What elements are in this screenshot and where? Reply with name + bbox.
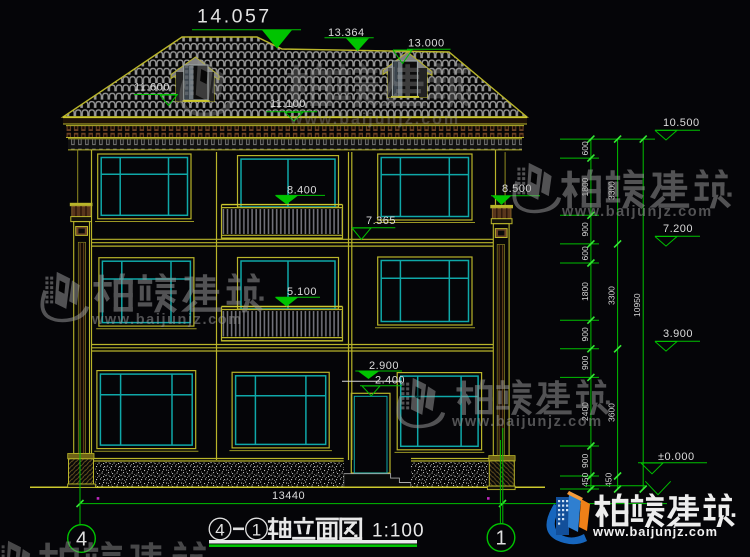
svg-text:1:100: 1:100 bbox=[372, 521, 425, 542]
svg-text:10950: 10950 bbox=[632, 293, 642, 317]
svg-text:450: 450 bbox=[580, 473, 590, 487]
svg-text:14.057: 14.057 bbox=[197, 6, 272, 28]
svg-text:600: 600 bbox=[580, 141, 590, 155]
svg-text:1: 1 bbox=[495, 528, 506, 550]
svg-text:900: 900 bbox=[580, 356, 590, 370]
svg-text:13.364: 13.364 bbox=[328, 27, 365, 39]
svg-text:13440: 13440 bbox=[272, 490, 305, 502]
svg-text:900: 900 bbox=[580, 222, 590, 236]
svg-text:1: 1 bbox=[252, 521, 261, 540]
svg-text:2.400: 2.400 bbox=[375, 375, 405, 387]
svg-text:11.600: 11.600 bbox=[134, 82, 170, 94]
svg-text:4: 4 bbox=[215, 521, 224, 540]
svg-text:1800: 1800 bbox=[580, 282, 590, 301]
svg-text:www.baijunjz.com: www.baijunjz.com bbox=[91, 312, 243, 328]
svg-text:8.400: 8.400 bbox=[287, 185, 317, 197]
svg-text:10.500: 10.500 bbox=[663, 117, 700, 129]
svg-text:2.900: 2.900 bbox=[369, 360, 399, 372]
svg-text:7.200: 7.200 bbox=[663, 223, 693, 235]
svg-text:4: 4 bbox=[76, 529, 87, 551]
svg-text:±0.000: ±0.000 bbox=[658, 451, 695, 463]
svg-text:www.baijunjz.com: www.baijunjz.com bbox=[451, 414, 603, 430]
svg-text:900: 900 bbox=[580, 327, 590, 341]
svg-text:7.365: 7.365 bbox=[366, 215, 396, 227]
svg-text:450: 450 bbox=[604, 473, 614, 487]
svg-text:600: 600 bbox=[580, 246, 590, 260]
svg-text:5.100: 5.100 bbox=[287, 286, 317, 298]
svg-text:3.900: 3.900 bbox=[663, 328, 693, 340]
svg-text:11.100: 11.100 bbox=[270, 98, 306, 110]
svg-text:www.baijunjz.com: www.baijunjz.com bbox=[289, 111, 460, 128]
svg-text:www.baijunjz.com: www.baijunjz.com bbox=[561, 204, 713, 220]
svg-text:13.000: 13.000 bbox=[408, 38, 445, 50]
svg-text:3300: 3300 bbox=[607, 286, 617, 305]
svg-text:www.baijunjz.com: www.baijunjz.com bbox=[592, 524, 718, 539]
svg-text:900: 900 bbox=[580, 454, 590, 468]
